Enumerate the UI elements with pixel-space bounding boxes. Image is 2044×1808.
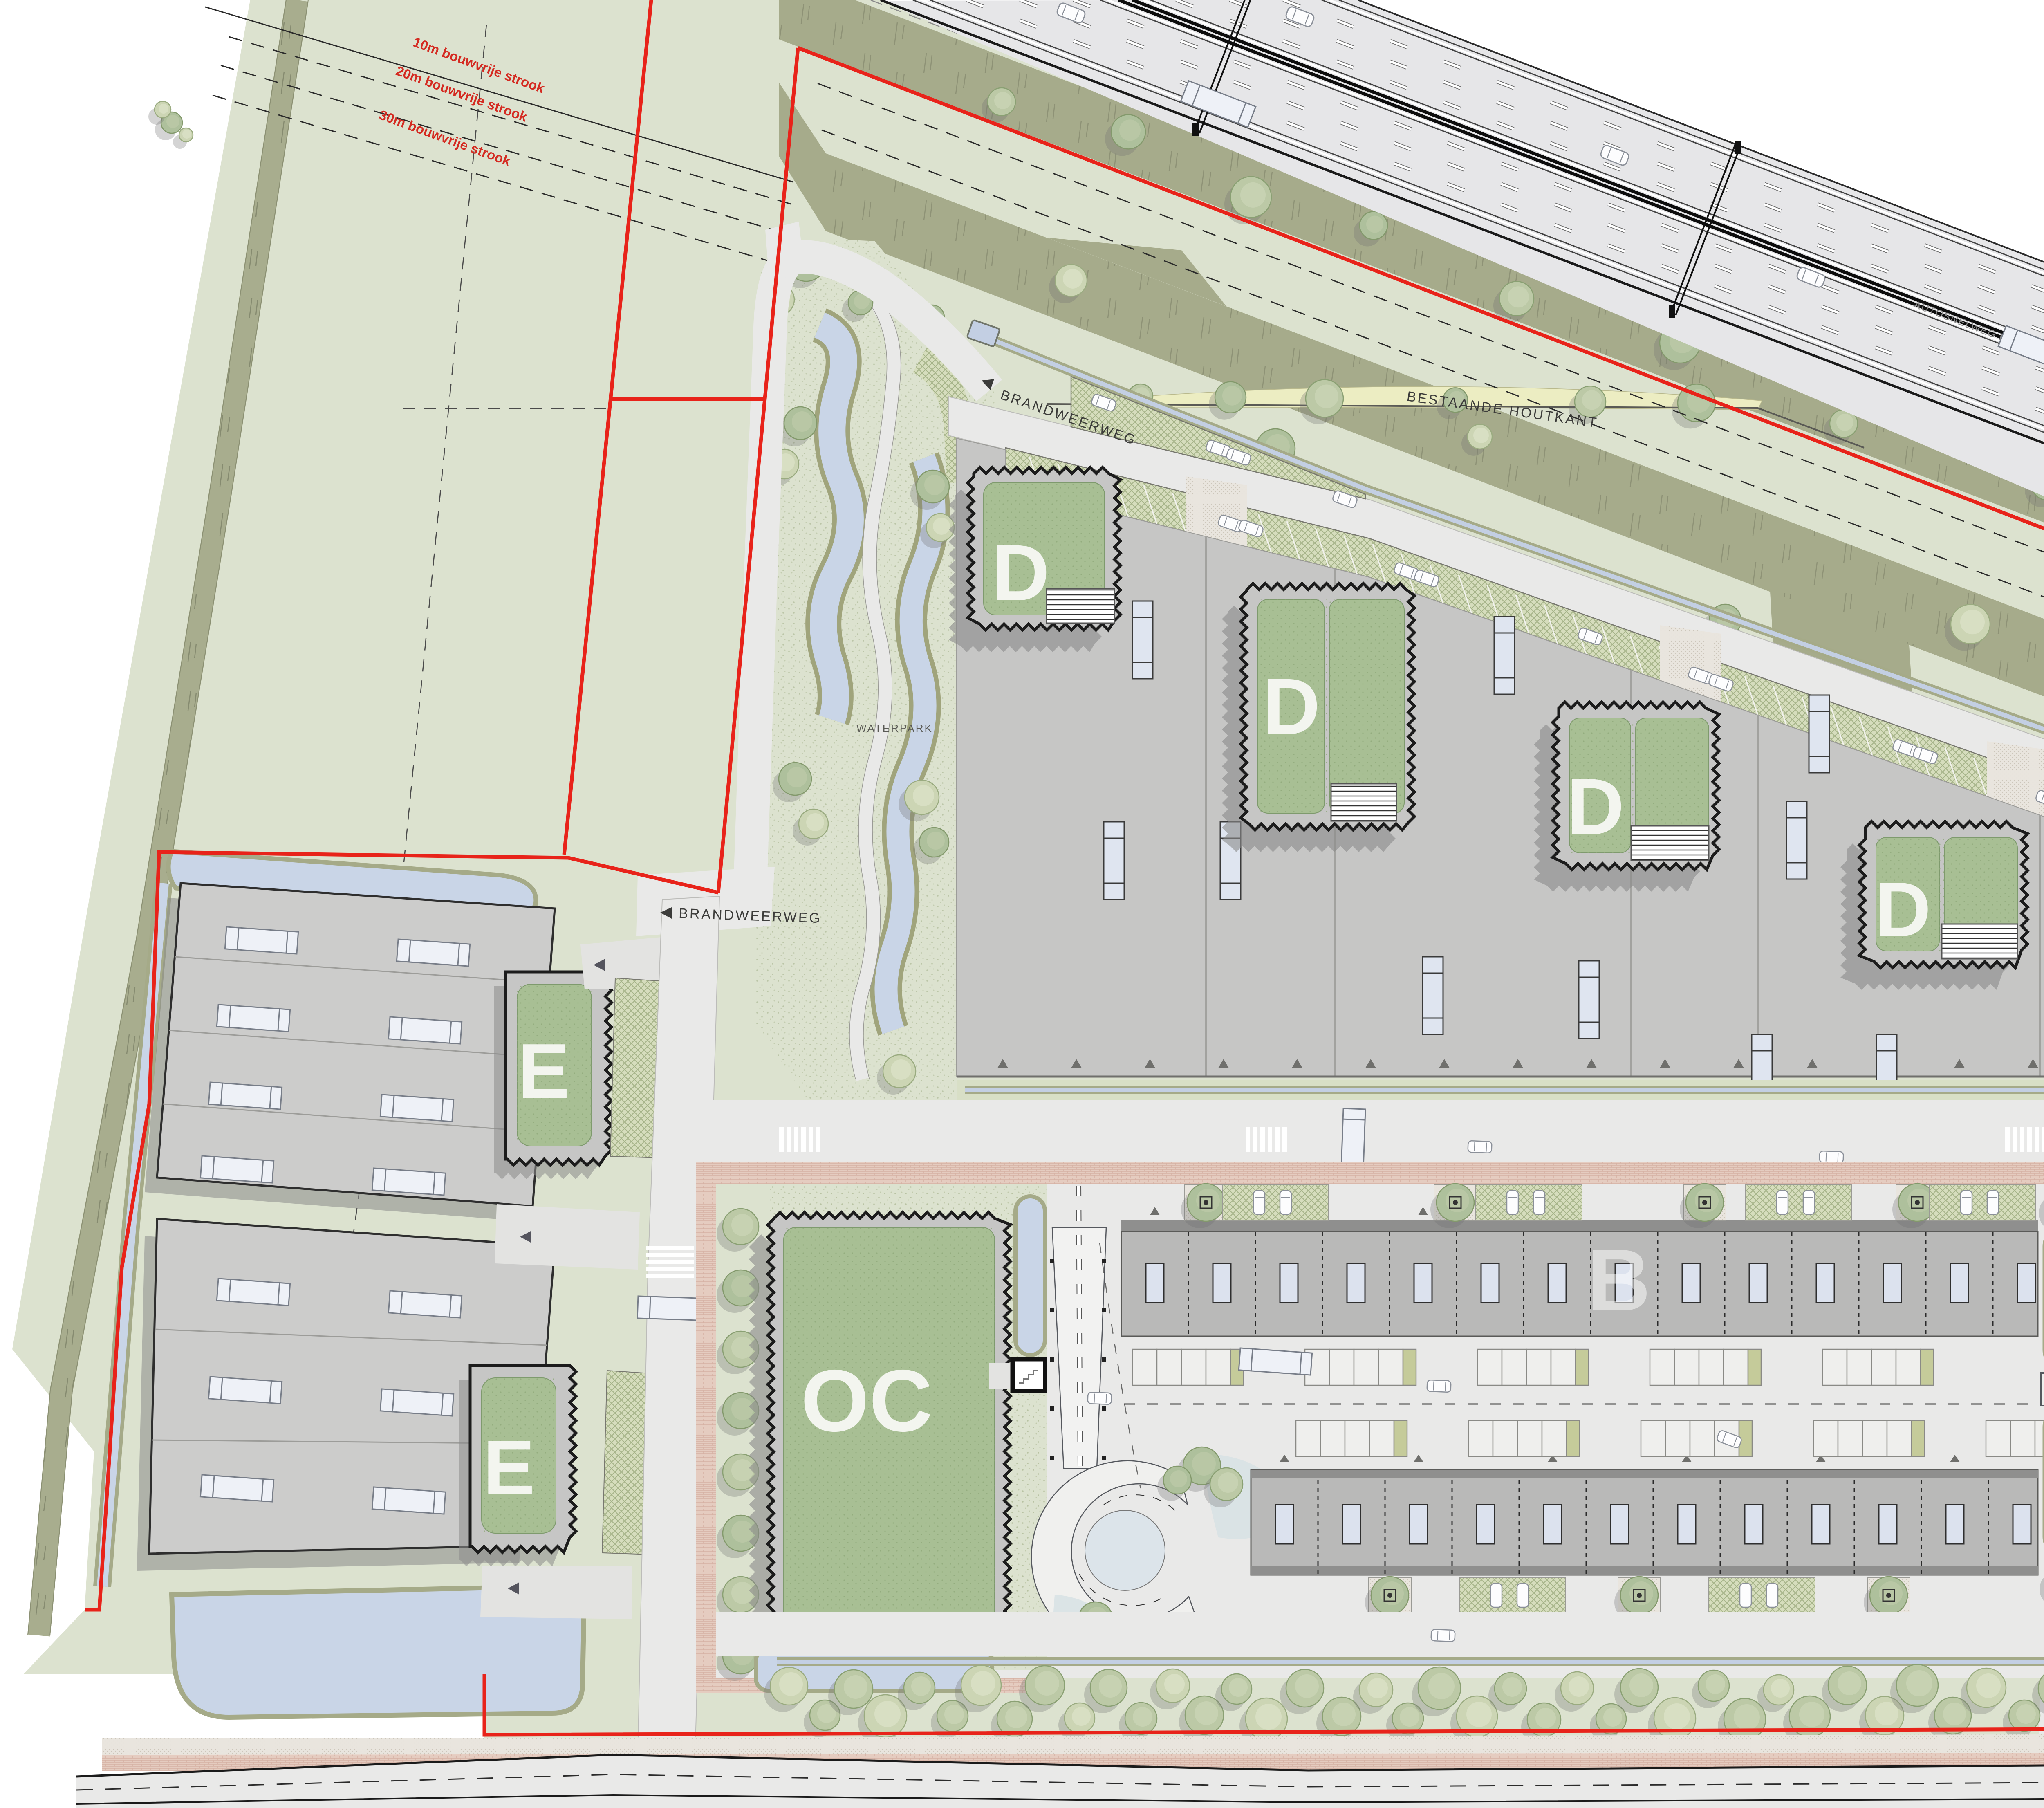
svg-text:D: D bbox=[1875, 866, 1931, 953]
svg-text:D: D bbox=[1263, 662, 1320, 751]
svg-text:WATERPARK: WATERPARK bbox=[856, 722, 933, 734]
svg-text:E: E bbox=[483, 1424, 535, 1511]
svg-text:D: D bbox=[992, 528, 1050, 617]
svg-text:B: B bbox=[1587, 1231, 1650, 1329]
svg-text:OC: OC bbox=[801, 1351, 933, 1450]
svg-text:D: D bbox=[1567, 762, 1625, 851]
svg-text:E: E bbox=[518, 1028, 570, 1115]
